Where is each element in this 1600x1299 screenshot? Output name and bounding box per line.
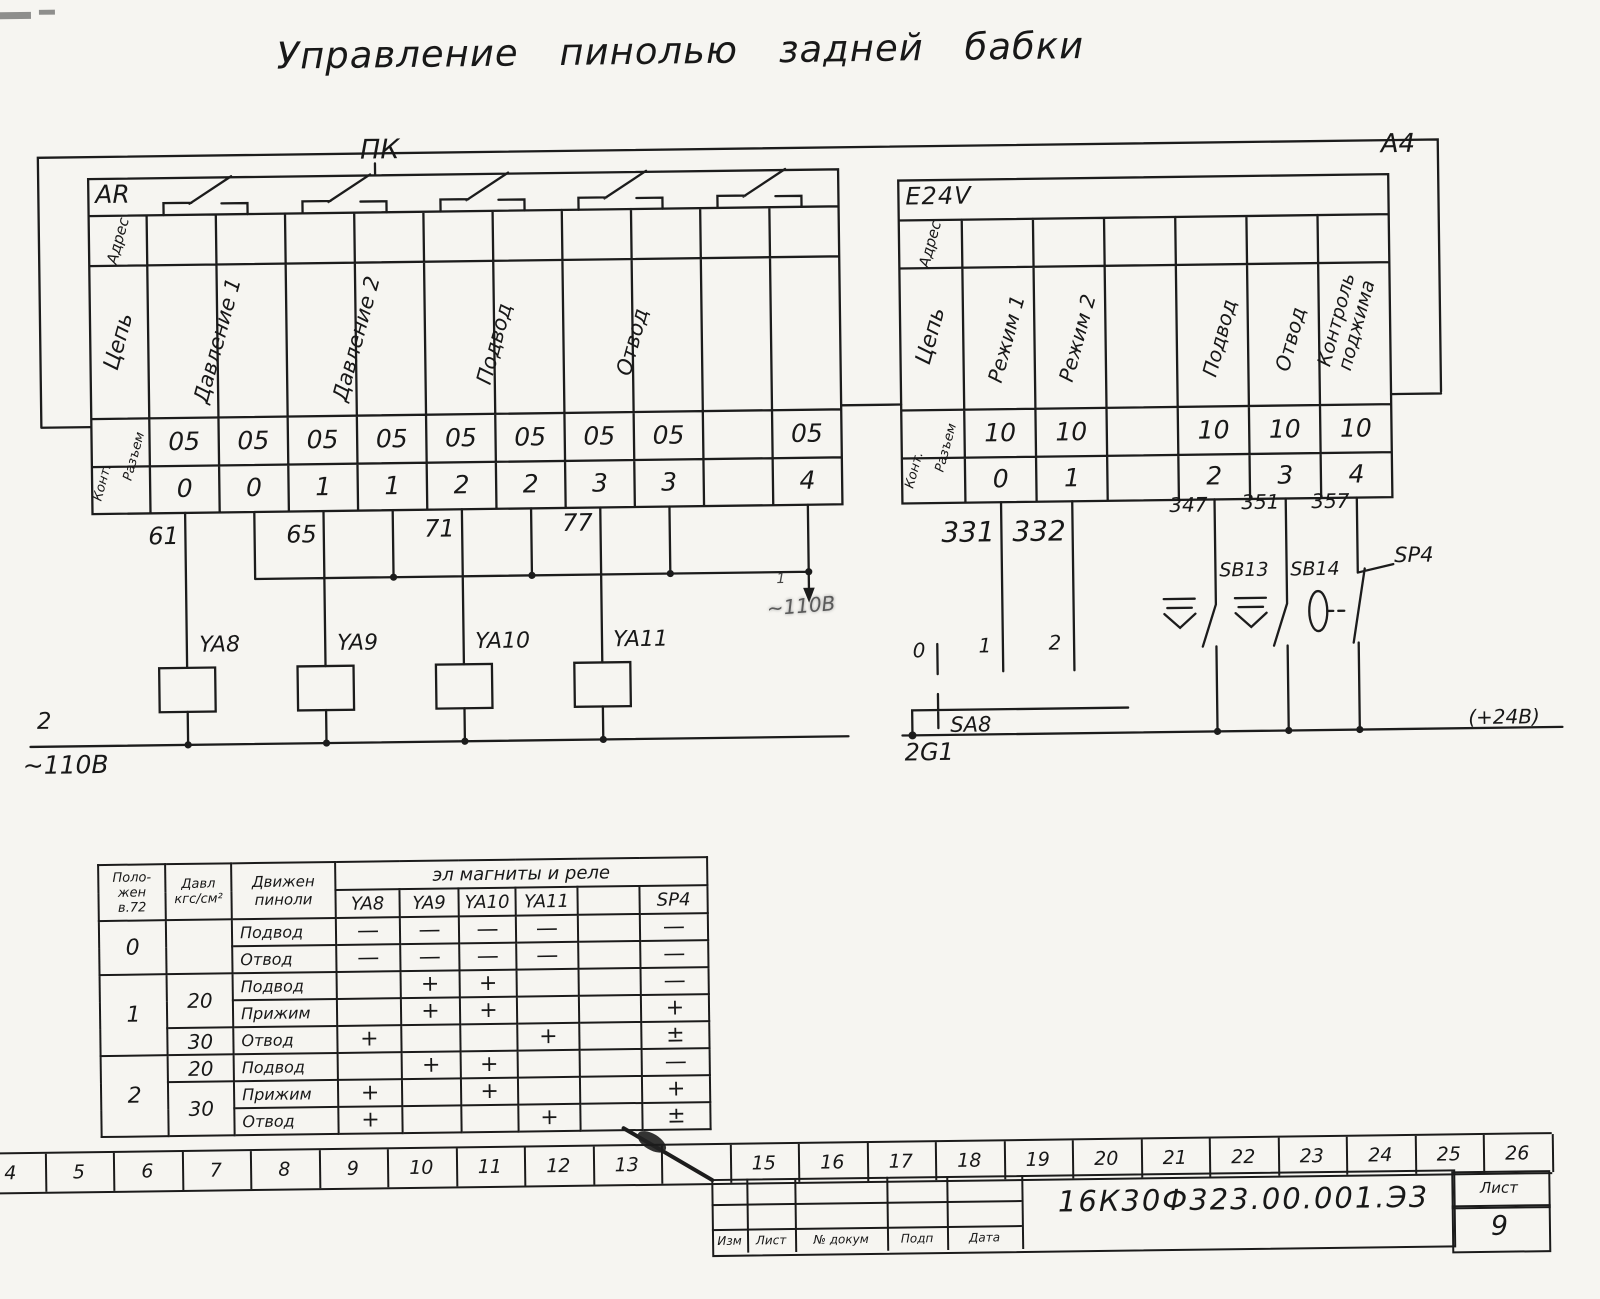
ruler-number: 26: [1483, 1134, 1554, 1173]
connector-value: 10: [1045, 418, 1097, 446]
state-cell: [461, 1105, 518, 1133]
state-cell: [337, 998, 401, 1026]
header-device: YA11: [515, 887, 577, 916]
movement-cell: Отвод: [234, 1107, 338, 1135]
connector-value: 05: [573, 422, 625, 450]
header-device: YA10: [458, 888, 515, 917]
state-cell: —: [642, 1048, 710, 1076]
movement-cell: Подвод: [232, 918, 336, 946]
state-cell: —: [336, 917, 400, 945]
header-movement: Движен пиноли: [231, 862, 336, 919]
contact-value: 2: [1188, 462, 1240, 490]
wire-number: 332: [1010, 516, 1066, 547]
state-cell: —: [459, 943, 516, 971]
position-cell: 2: [101, 1055, 169, 1137]
state-cell: —: [459, 916, 516, 944]
ruler-number: 6: [113, 1152, 184, 1191]
state-cell: [580, 1103, 642, 1131]
connector-value: 05: [435, 424, 487, 452]
right-connector-table-grid: [898, 174, 1392, 503]
contact-value: 1: [297, 473, 349, 501]
ruler-number: 24: [1346, 1136, 1417, 1175]
pressure-cell: 30: [168, 1081, 235, 1136]
contact-value: 3: [574, 469, 626, 497]
state-cell: ±: [641, 1021, 709, 1049]
state-cell: +: [337, 1025, 401, 1053]
state-cell: [517, 996, 579, 1024]
ruler-number: [661, 1145, 732, 1184]
state-cell: —: [640, 940, 708, 968]
left-block-name: AR: [95, 181, 130, 208]
state-cell: [518, 1077, 580, 1105]
selector-switch-label: SA8: [950, 713, 991, 736]
document-number: 16К30Ф323.00.001.Э3: [1038, 1175, 1449, 1224]
ruler-number: 5: [44, 1153, 115, 1192]
header-pressure: Давл кгс/см²: [165, 863, 232, 920]
solenoid-coil-icon: [436, 664, 493, 709]
wire-lines-right: [899, 495, 1562, 740]
solenoid-coil-icon: [298, 666, 355, 711]
contact-value: 2: [505, 470, 557, 498]
solenoid-label: YA9: [337, 631, 378, 655]
ruler-number: 18: [935, 1141, 1006, 1180]
wire-number: 61: [137, 524, 179, 550]
wire-number: 351: [1231, 492, 1279, 514]
movement-cell: Прижим: [234, 1080, 338, 1108]
ruler-number: 17: [866, 1142, 937, 1181]
contact-value: 4: [781, 466, 833, 494]
pushbutton-mushroom-icon: [1234, 498, 1289, 731]
movement-cell: Подвод: [233, 972, 337, 1000]
movement-cell: Подвод: [234, 1053, 338, 1081]
relay-contact-icon: [302, 174, 386, 213]
sheet-format-label: A4: [1381, 130, 1416, 159]
state-cell: [338, 1052, 402, 1080]
state-cell: [460, 1024, 517, 1052]
connector-value: 05: [296, 426, 348, 454]
contact-value: 3: [643, 468, 695, 496]
state-cell: —: [400, 916, 459, 944]
solenoid-label: YA8: [199, 633, 240, 657]
state-cell: [517, 969, 579, 997]
position-cell: 1: [100, 974, 168, 1056]
relay-contact-icon: [440, 172, 524, 211]
contact-value: 1: [366, 472, 418, 500]
pressure-cell: 20: [168, 1054, 234, 1082]
ruler-number: 23: [1277, 1137, 1348, 1176]
connector-value: 10: [974, 419, 1026, 447]
selector-position-label: 2: [1035, 632, 1061, 654]
pushbutton-label: SB14: [1290, 559, 1340, 580]
ruler-number: 7: [181, 1151, 252, 1190]
wire-number: 357: [1301, 491, 1349, 513]
connector-value: 05: [781, 419, 833, 447]
ruler-number: 4: [0, 1154, 47, 1193]
ruler-number: 15: [729, 1144, 800, 1183]
scan-speck: [0, 10, 55, 20]
solenoid-label: YA11: [613, 628, 668, 652]
ruler-number: 12: [524, 1147, 595, 1186]
footer-label: Дата: [947, 1227, 1022, 1248]
state-cell: [579, 1022, 641, 1050]
solenoid-coil-icon: [159, 668, 216, 713]
header-device: YA8: [335, 889, 399, 918]
connector-value: 10: [1187, 416, 1239, 444]
bus-voltage-label: (+24В): [1468, 706, 1540, 729]
state-cell: —: [400, 943, 459, 971]
footer-label: Изм: [712, 1231, 747, 1251]
connector-value: 05: [227, 427, 279, 455]
header-device: YA9: [399, 888, 458, 917]
ruler-number: 20: [1072, 1139, 1143, 1178]
wire-number: 331: [939, 517, 995, 548]
pressure-cell: [166, 919, 233, 974]
state-cell: +: [642, 1075, 710, 1103]
connector-value: 05: [158, 428, 210, 456]
movement-cell: Отвод: [232, 945, 336, 973]
state-cell: [518, 1050, 580, 1078]
state-cell: [578, 914, 640, 942]
state-cell: [402, 1105, 461, 1133]
state-cell: +: [461, 1078, 518, 1106]
footer-label: Лист: [747, 1230, 795, 1251]
connector-value: 10: [1330, 414, 1382, 442]
state-cell: —: [516, 915, 578, 943]
state-cell: +: [338, 1106, 402, 1134]
pk-label: ПК: [345, 135, 415, 165]
ruler-number: 21: [1140, 1139, 1211, 1178]
ruler-number: 25: [1414, 1135, 1485, 1174]
pressure-cell: 20: [167, 973, 234, 1028]
wire-number: 347: [1159, 495, 1207, 517]
contact-value: 4: [1330, 460, 1382, 488]
header-device: [577, 886, 639, 915]
connector-value: 05: [642, 421, 694, 449]
junction-dots: [182, 568, 814, 748]
state-cell: +: [461, 1051, 518, 1079]
state-cell: +: [460, 997, 517, 1025]
pressure-cell: 30: [167, 1027, 233, 1055]
bus-wire-number: 2: [30, 710, 58, 735]
selector-position-label: 1: [965, 635, 991, 657]
state-cell: +: [338, 1079, 402, 1107]
state-cell: +: [401, 970, 460, 998]
state-cell: [578, 941, 640, 969]
wire-number: 65: [275, 522, 317, 548]
bus-connector-label: 2G1: [905, 740, 954, 767]
contact-value: 0: [975, 465, 1027, 493]
relay-contact-icon: [163, 176, 247, 215]
pushbutton-mushroom-icon: [1162, 499, 1217, 732]
state-cell: +: [517, 1023, 579, 1051]
contact-value: 2: [435, 471, 487, 499]
ruler-number: 13: [592, 1146, 663, 1185]
contact-value: 3: [1259, 461, 1311, 489]
state-cell: [579, 968, 641, 996]
scanned-schematic-sheet: Управление пинолью задней бабки ПК A4 AR…: [0, 0, 1600, 1298]
state-cell: [337, 971, 401, 999]
footer-label: № докум: [795, 1229, 887, 1250]
header-position: Поло- жен в.72: [98, 864, 166, 921]
state-cell: +: [460, 970, 517, 998]
connector-value: 05: [504, 423, 556, 451]
selector-position-label: 0: [899, 640, 925, 662]
solenoid-label: YA10: [475, 629, 530, 653]
ruler-number: 19: [1003, 1140, 1074, 1179]
pushbutton-label: SB13: [1219, 560, 1269, 581]
state-cell: [401, 1024, 460, 1052]
state-cell: +: [401, 997, 460, 1025]
ruler-number: 9: [318, 1149, 389, 1188]
state-cell: —: [516, 942, 578, 970]
logic-table: Поло- жен в.72 Давл кгс/см² Движен пинол…: [97, 856, 712, 1138]
state-cell: +: [402, 1051, 461, 1079]
solenoid-coil-icon: [574, 662, 631, 707]
connector-value: 05: [366, 425, 418, 453]
header-device: SP4: [639, 885, 707, 914]
pressure-switch-label: SP4: [1394, 544, 1434, 567]
relay-contact-icon: [717, 169, 801, 208]
state-cell: [580, 1076, 642, 1104]
sheet-label: Лист: [1451, 1174, 1546, 1201]
ruler-number: 11: [455, 1147, 526, 1186]
pressure-switch-icon: [1308, 497, 1396, 730]
ruler-number: 16: [798, 1143, 869, 1182]
state-cell: ±: [642, 1102, 710, 1130]
state-cell: [579, 995, 641, 1023]
movement-cell: Прижим: [233, 999, 337, 1027]
right-block-name: E24V: [905, 184, 971, 211]
contact-value: 1: [1046, 464, 1098, 492]
ruler-number: 22: [1209, 1138, 1280, 1177]
wire-number: 71: [413, 516, 455, 542]
relay-contact-icon: [578, 171, 662, 210]
state-cell: —: [640, 967, 708, 995]
state-cell: +: [641, 994, 709, 1022]
movement-cell: Отвод: [233, 1026, 337, 1054]
bus-voltage-label: ~110В: [23, 751, 109, 779]
state-cell: —: [336, 944, 400, 972]
left-connector-table-grid: [88, 157, 842, 514]
connector-value: 10: [1259, 415, 1311, 443]
position-cell: 0: [99, 920, 167, 975]
ruler-number: 8: [250, 1150, 321, 1189]
ruler-number: 10: [387, 1148, 458, 1187]
state-cell: +: [518, 1104, 580, 1132]
bus-wire-number: 1: [776, 572, 785, 587]
contact-value: 0: [159, 475, 211, 503]
footer-label: Подп: [887, 1228, 947, 1249]
sheet-number: 9: [1452, 1208, 1547, 1245]
state-cell: —: [640, 913, 708, 941]
contact-value: 0: [228, 474, 280, 502]
state-cell: [402, 1078, 461, 1106]
state-cell: [580, 1049, 642, 1077]
wire-number: 77: [551, 511, 593, 537]
